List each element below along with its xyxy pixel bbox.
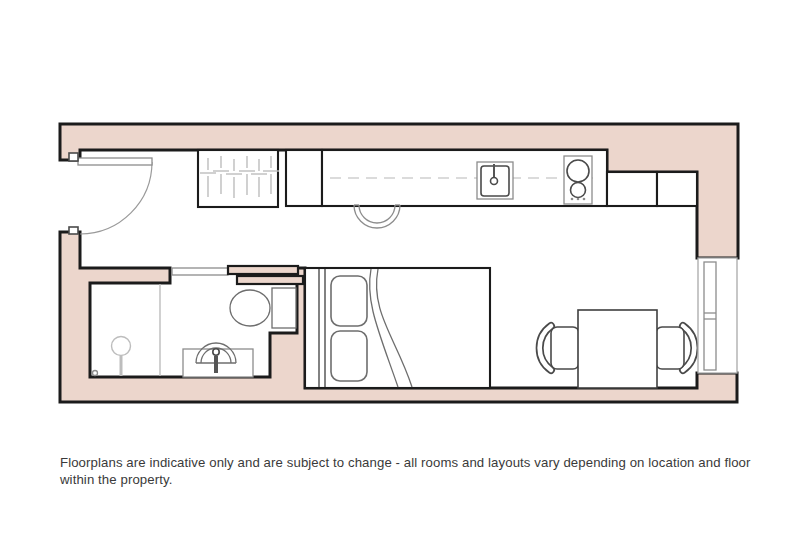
pillow-bottom (331, 331, 367, 381)
dining-set (540, 310, 695, 388)
breakfast-stool (354, 205, 400, 228)
door-swing-arc (80, 162, 152, 234)
wardrobe (198, 150, 279, 207)
double-bed (305, 268, 490, 388)
tall-cabinet (286, 150, 322, 206)
window (698, 258, 737, 373)
burner-large-icon (567, 160, 589, 182)
sliding-panel-outer (228, 266, 298, 274)
door-hinge-top (69, 153, 78, 161)
chair-left-seat (551, 327, 579, 369)
burner-small-icon (571, 183, 586, 198)
door-track (172, 268, 228, 275)
worktop-cabinet-right (657, 172, 697, 206)
floorplan-page: Floorplans are indicative only and are s… (0, 0, 800, 533)
chair-right-seat (656, 327, 684, 369)
door-leaf (78, 158, 152, 165)
faucet-icon (491, 178, 498, 185)
shower (93, 337, 131, 377)
kitchen-sink (477, 162, 513, 199)
sliding-panel-inner (237, 276, 303, 284)
drain-icon (93, 371, 98, 376)
cistern (272, 288, 296, 328)
washbasin (183, 343, 253, 377)
disclaimer-text: Floorplans are indicative only and are s… (60, 454, 770, 488)
window-glazing (704, 262, 716, 370)
dining-table (578, 310, 657, 388)
door-hinge-bottom (69, 227, 78, 234)
sliding-door (172, 266, 303, 284)
entry-door (69, 153, 152, 234)
toilet (230, 288, 296, 328)
toilet-bowl (230, 290, 270, 326)
pillow-top (331, 276, 367, 326)
worktop-cabinet-left (607, 172, 657, 206)
hob (564, 156, 592, 204)
wardrobe-box (198, 150, 278, 207)
shower-head-icon (112, 337, 131, 356)
basin-faucet-icon (213, 349, 219, 355)
